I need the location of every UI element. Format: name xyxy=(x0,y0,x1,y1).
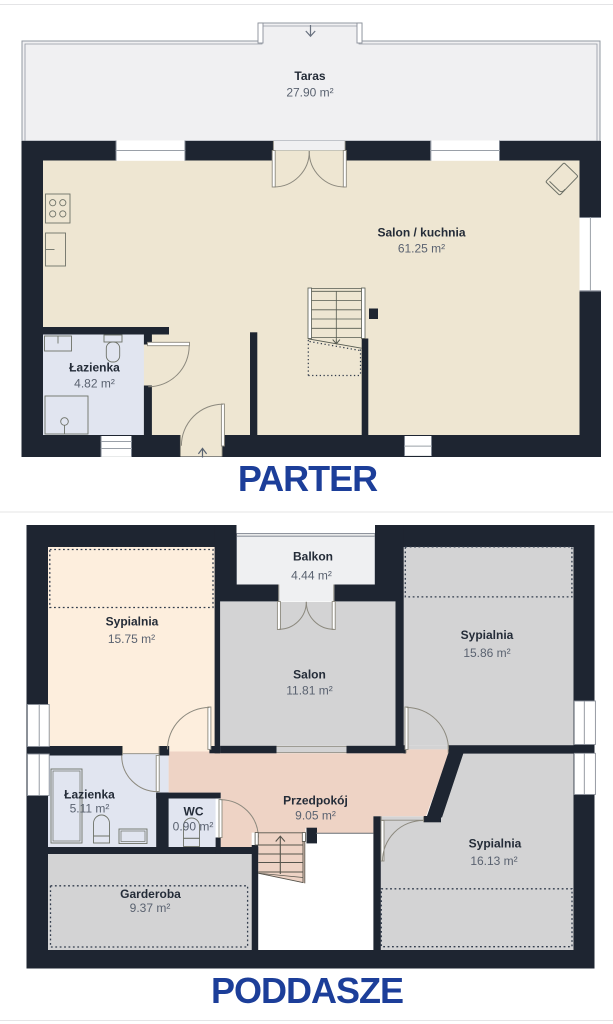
svg-text:Łazienka: Łazienka xyxy=(69,361,120,375)
svg-text:PODDASZE: PODDASZE xyxy=(211,970,403,1011)
svg-text:5.11 m²: 5.11 m² xyxy=(70,802,110,816)
svg-text:4.44 m²: 4.44 m² xyxy=(291,569,332,583)
svg-text:Przedpokój: Przedpokój xyxy=(283,794,348,808)
svg-text:15.86 m²: 15.86 m² xyxy=(463,646,510,660)
svg-text:11.81 m²: 11.81 m² xyxy=(286,684,332,698)
svg-text:9.05 m²: 9.05 m² xyxy=(295,809,336,823)
svg-text:Balkon: Balkon xyxy=(293,550,333,564)
svg-text:0.90 m²: 0.90 m² xyxy=(173,820,214,834)
svg-text:Sypialnia: Sypialnia xyxy=(469,837,522,851)
svg-text:9.37 m²: 9.37 m² xyxy=(130,901,171,915)
svg-text:Salon / kuchnia: Salon / kuchnia xyxy=(377,226,465,240)
svg-text:Sypialnia: Sypialnia xyxy=(106,615,159,629)
svg-text:16.13 m²: 16.13 m² xyxy=(470,854,517,868)
svg-text:Łazienka: Łazienka xyxy=(64,788,115,802)
svg-text:Garderoba: Garderoba xyxy=(120,887,181,901)
svg-text:WC: WC xyxy=(184,805,204,819)
svg-text:4.82 m²: 4.82 m² xyxy=(74,377,115,391)
svg-text:27.90 m²: 27.90 m² xyxy=(286,86,333,100)
svg-text:Sypialnia: Sypialnia xyxy=(461,628,514,642)
svg-text:15.75 m²: 15.75 m² xyxy=(108,632,155,646)
svg-text:PARTER: PARTER xyxy=(238,458,378,499)
svg-text:Taras: Taras xyxy=(294,69,325,83)
svg-text:61.25 m²: 61.25 m² xyxy=(398,242,445,256)
svg-text:Salon: Salon xyxy=(293,668,326,682)
